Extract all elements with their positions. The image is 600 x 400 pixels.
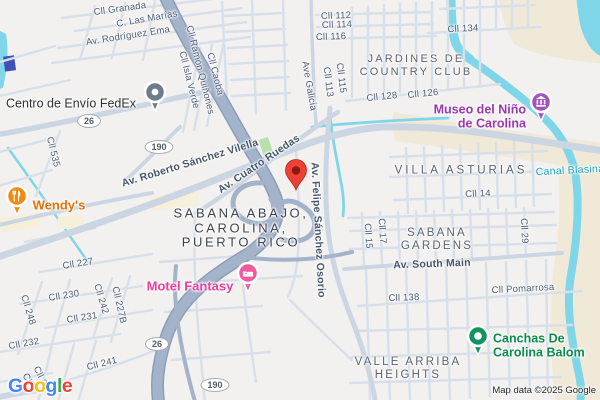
canchas-poi-marker[interactable] [465,324,491,361]
area-line: JARDINES DE [360,53,473,66]
place-dot-icon [152,89,159,96]
route-number: 26 [84,116,94,126]
route-shield-190: 190 [144,140,173,154]
map-pin-icon [283,157,309,191]
logo-letter: G [8,375,23,397]
area-line: SABANA [401,227,473,240]
wendys-poi-marker[interactable] [4,184,30,221]
poi-label-line: Museo del Niño [434,104,526,118]
area-line: HEIGHTS [355,369,462,382]
area-line: SABANA ABAJO, [174,206,309,221]
motel-fantasy-poi-label[interactable]: Motel Fantasy [147,279,234,293]
area-line: CAROLINA, [174,221,309,236]
area-label-villa-asturias: VILLA ASTURIAS [395,165,528,178]
logo-letter: g [46,375,57,397]
street-label-c138: Cll 138 [388,292,419,304]
motel-fantasy-poi-marker[interactable] [235,261,261,298]
map-canvas[interactable]: Cll Granada C. Las Marías Av. Rodríguez … [0,0,600,400]
fedex-poi-label[interactable]: Centro de Envío FedEx [6,97,136,111]
street-label-c29: Cll 29 [518,218,530,244]
bed-icon [243,271,253,276]
area-label-jardines-country-club: JARDINES DE COUNTRY CLUB [360,53,473,79]
area-label-sabana-abajo-carolina: SABANA ABAJO, CAROLINA, PUERTO RICO [174,206,309,250]
canchas-poi-label[interactable]: Canchas De Carolina Balom [493,333,585,360]
wendys-poi-label[interactable]: Wendy's [33,198,86,212]
route-shield-190: 190 [200,378,229,392]
poi-label-line: de Carolina [434,117,526,131]
area-line: VALLE ARRIBA [355,356,462,369]
route-number: 190 [151,142,166,152]
area-label-sabana-gardens: SABANA GARDENS [401,227,473,253]
area-line: GARDENS [401,240,473,253]
destination-pin[interactable] [283,157,309,196]
street-label-c134: Cll 134 [447,23,479,36]
street-label-c15: Cll 15 [362,223,375,249]
museo-poi-label[interactable]: Museo del Niño de Carolina [434,104,526,131]
street-label-c116: Cll 116 [316,31,347,43]
street-label-c114: Cll 114 [322,19,353,31]
poi-label-line: Canchas De [493,333,585,347]
google-logo[interactable]: Google [8,375,72,398]
logo-letter: o [34,375,45,397]
logo-letter: e [62,375,72,397]
area-line: COUNTRY CLUB [360,66,473,79]
map-attribution: Map data ©2025 Google [492,385,596,396]
street-label-c17: Cll 17 [376,218,389,244]
museo-poi-marker[interactable] [528,90,554,127]
logo-letter: o [23,375,34,397]
place-dot-icon [474,332,482,340]
area-label-valle-arriba-heights: VALLE ARRIBA HEIGHTS [355,356,462,382]
street-label-c14: Cll 14 [465,188,491,200]
area-line: PUERTO RICO [174,235,309,250]
poi-label-line: Carolina Balom [493,346,585,360]
route-number: 26 [152,339,162,349]
route-shield-26: 26 [145,337,169,351]
route-number: 190 [207,380,222,390]
route-shield-26: 26 [77,114,101,128]
fedex-poi-marker[interactable] [142,80,168,117]
